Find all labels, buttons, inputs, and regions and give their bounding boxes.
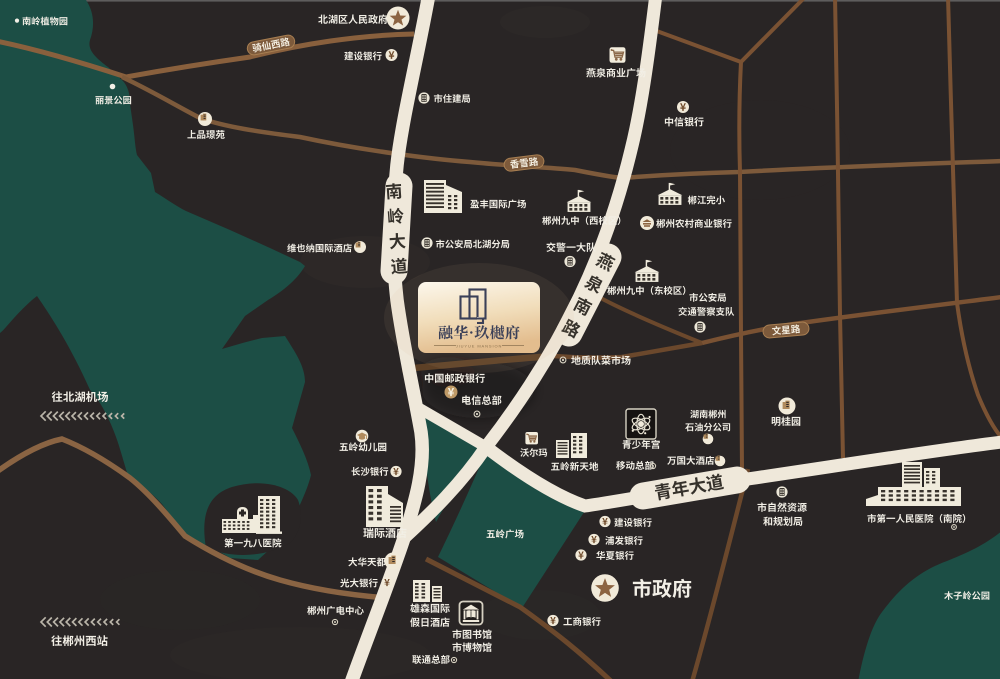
svg-text:JIUYUE MANSION: JIUYUE MANSION bbox=[456, 344, 503, 349]
